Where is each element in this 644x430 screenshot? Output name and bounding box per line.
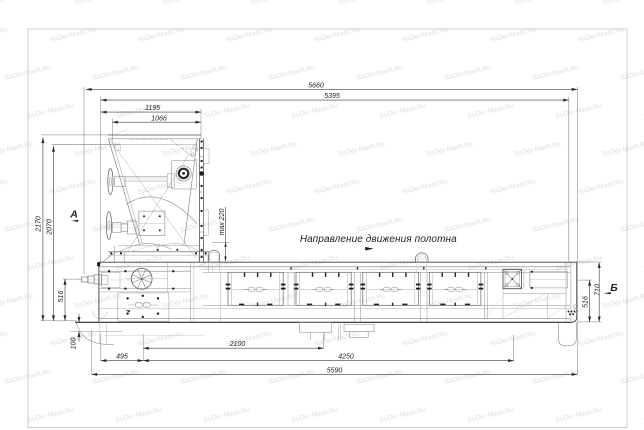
- svg-text:1195: 1195: [145, 105, 160, 112]
- svg-text:710: 710: [594, 284, 601, 296]
- svg-text:495: 495: [116, 353, 128, 360]
- svg-text:Направление движения полотна: Направление движения полотна: [300, 234, 457, 245]
- svg-text:5590: 5590: [327, 367, 343, 374]
- svg-text:516: 516: [58, 291, 65, 303]
- svg-text:2170: 2170: [36, 216, 43, 233]
- svg-text:max 220: max 220: [219, 208, 226, 235]
- svg-text:2070: 2070: [46, 219, 53, 236]
- svg-text:Б: Б: [610, 282, 618, 294]
- svg-text:100: 100: [71, 338, 78, 350]
- svg-text:2100: 2100: [229, 341, 246, 348]
- svg-text:516: 516: [582, 296, 589, 308]
- svg-text:5395: 5395: [324, 93, 340, 100]
- svg-text:5660: 5660: [308, 82, 324, 89]
- svg-text:4250: 4250: [338, 353, 354, 360]
- svg-text:А: А: [69, 209, 78, 221]
- svg-text:1066: 1066: [151, 115, 167, 122]
